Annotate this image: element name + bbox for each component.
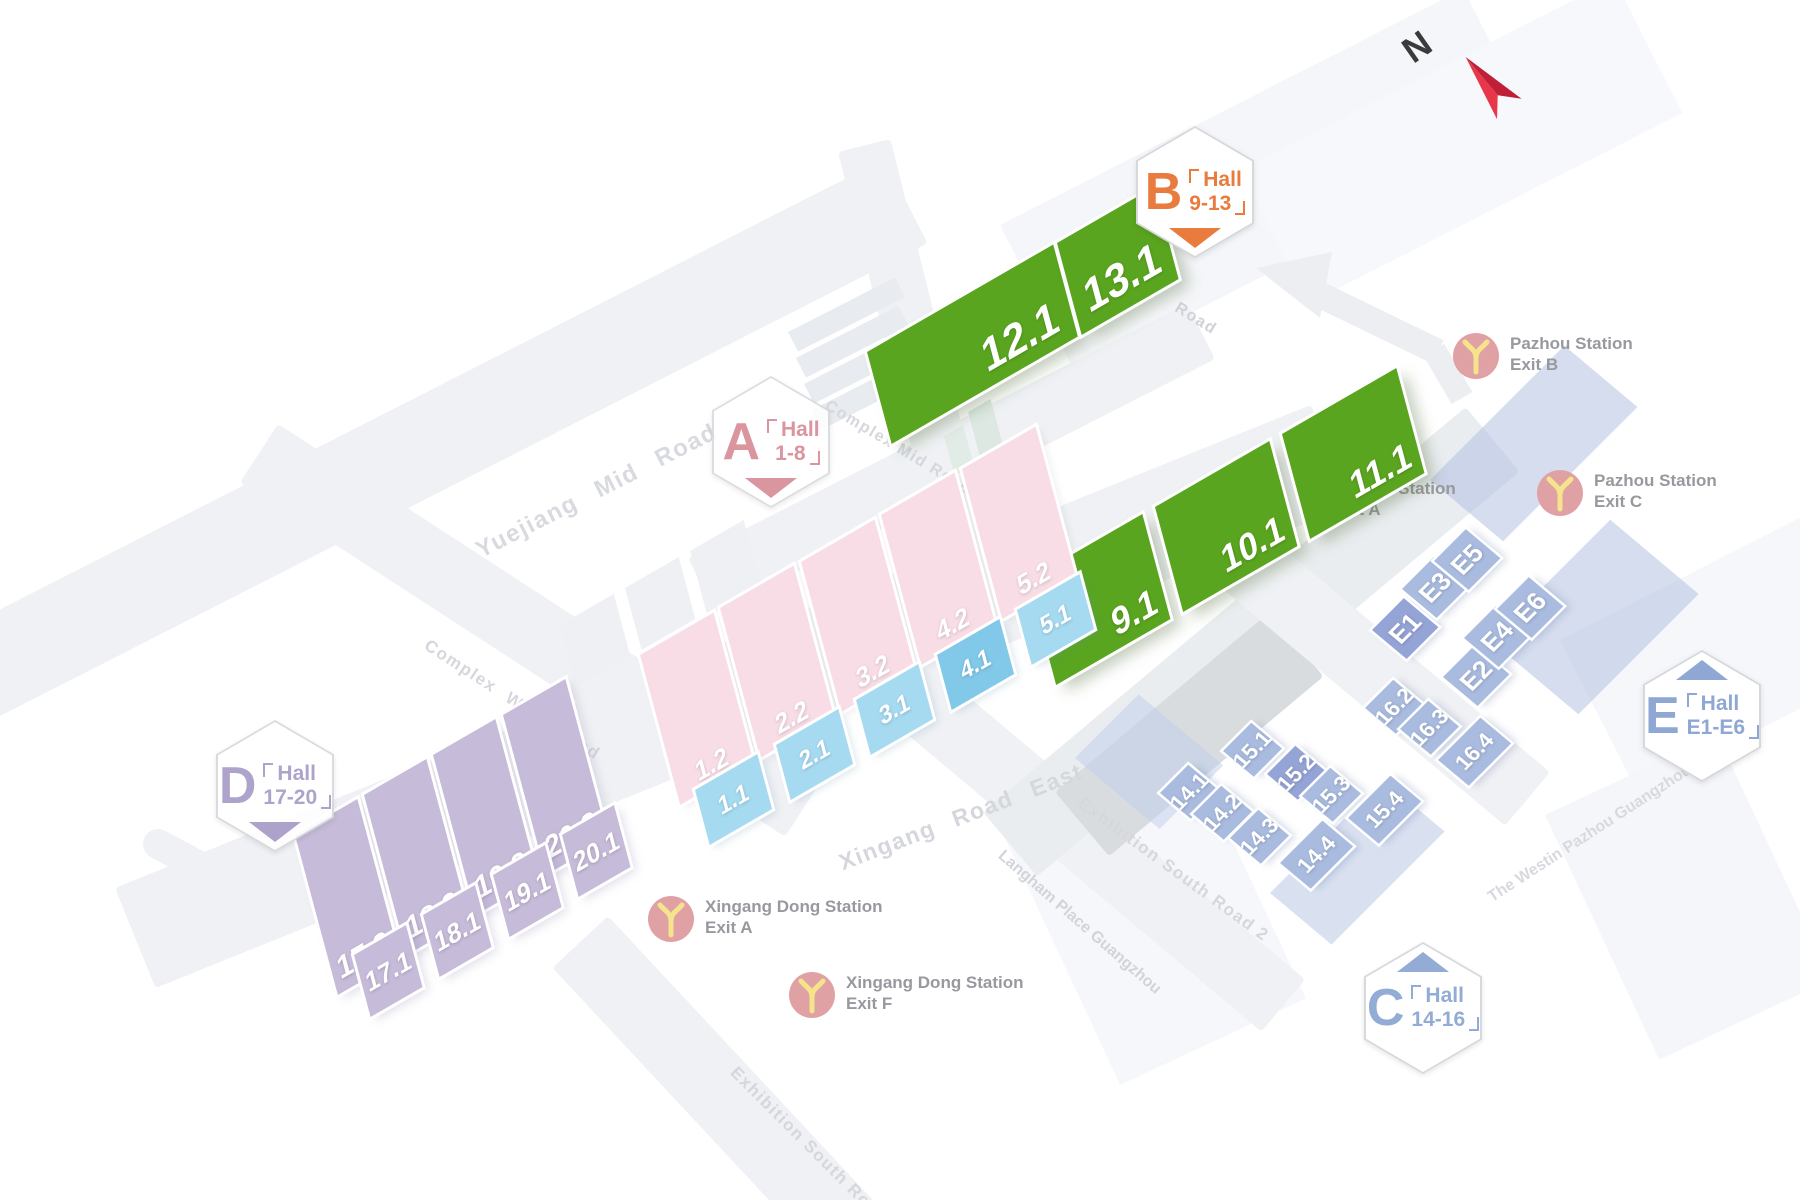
station-name: Xingang Dong Station: [705, 896, 883, 917]
metro-station-icon[interactable]: [648, 896, 694, 942]
station-exit: Exit F: [846, 993, 1024, 1014]
badge-hall-a[interactable]: A Hall1-8: [712, 376, 830, 508]
metro-station-icon[interactable]: [1537, 470, 1583, 516]
station-pazhou-station-exit-b: Pazhou Station Exit B: [1453, 333, 1633, 379]
metro-station-icon[interactable]: [789, 972, 835, 1018]
station-xingang-dong-station-exit-f: Xingang Dong Station Exit F: [789, 972, 1024, 1018]
metro-station-icon[interactable]: [1453, 333, 1499, 379]
station-exit: Exit C: [1594, 491, 1717, 512]
station-name: Pazhou Station: [1510, 333, 1633, 354]
badge-pointer-icon: [745, 478, 797, 498]
badge-hall-c[interactable]: C Hall14-16: [1364, 942, 1482, 1074]
station-xingang-dong-station-exit-a: Xingang Dong Station Exit A: [648, 896, 883, 942]
station-pazhou-station-exit-c: Pazhou Station Exit C: [1537, 470, 1717, 516]
station-exit: Exit B: [1510, 354, 1633, 375]
badge-pointer-icon: [1676, 660, 1728, 680]
hall-label: 9.1: [1107, 579, 1162, 646]
badge-letter: D: [219, 763, 257, 810]
exhibition-complex-map: Yuejiang Mid Road Complex Mid Road Compl…: [0, 0, 1800, 1200]
badge-letter: E: [1645, 693, 1680, 740]
badge-hall-d[interactable]: D Hall17-20: [216, 720, 334, 852]
road-exhibition-south: [552, 916, 901, 1200]
badge-letter: A: [722, 419, 760, 466]
badge-pointer-icon: [249, 822, 301, 842]
compass-arrow-icon: [1448, 44, 1532, 128]
badge-hall-b[interactable]: B Hall9-13: [1136, 126, 1254, 258]
station-name: Pazhou Station: [1594, 470, 1717, 491]
hall-label: 12.1: [976, 291, 1064, 384]
badge-letter: B: [1145, 169, 1183, 216]
station-exit: Exit A: [705, 917, 883, 938]
badge-letter: C: [1367, 985, 1405, 1032]
badge-pointer-icon: [1397, 952, 1449, 972]
badge-pointer-icon: [1169, 228, 1221, 248]
badge-hall-e[interactable]: E HallE1-E6: [1643, 650, 1761, 782]
station-name: Xingang Dong Station: [846, 972, 1024, 993]
